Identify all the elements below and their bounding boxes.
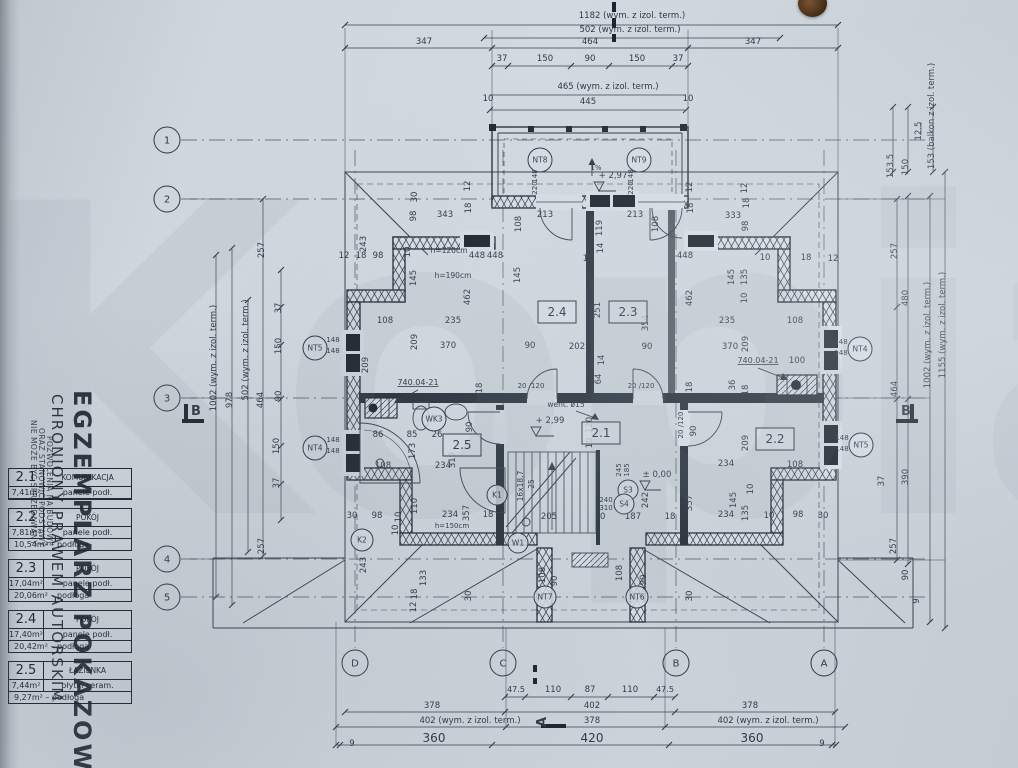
marker-label: NT4	[308, 444, 323, 453]
dim-label: 133	[419, 570, 429, 586]
axis-label: 4	[164, 555, 170, 566]
dim-label: 47.5	[507, 685, 525, 694]
marker-label: S3	[623, 486, 633, 495]
dim-label: 360	[423, 731, 446, 745]
flue-right	[791, 380, 801, 390]
dim-label: 234	[718, 510, 734, 520]
dim-label: 37	[272, 478, 282, 489]
room-number: 2.5	[452, 438, 471, 452]
toilet-tank	[413, 402, 429, 409]
dim-label: 14	[597, 355, 607, 366]
dim-label: 12	[685, 182, 695, 193]
room-number: 2.2	[765, 432, 784, 446]
dim-label: 18	[685, 382, 695, 393]
axis-label: D	[351, 659, 359, 670]
dim-label: 370	[440, 341, 456, 351]
dim-label: 98	[793, 510, 804, 520]
dim-label: 257	[889, 538, 899, 554]
dim-label: 18	[665, 512, 676, 522]
dim-label: 390	[901, 469, 911, 485]
section-a-bottom	[535, 665, 566, 726]
dim-label: 18	[410, 589, 420, 600]
dim-label: 12.5	[914, 122, 924, 141]
dim-label: 343	[437, 210, 453, 220]
dim-label: 347	[416, 37, 432, 47]
dim-label: 85	[407, 430, 418, 440]
dim-label: 360	[741, 731, 764, 745]
dim-label: 90	[901, 570, 911, 581]
floor-drain	[522, 518, 530, 526]
dim-label: 90	[465, 422, 475, 433]
dim-label: 465 (wym. z izol. term.)	[557, 82, 658, 92]
dim-label: 90	[585, 54, 596, 64]
dim-label: 1002 (wym. z izol. term.)	[209, 305, 219, 411]
dim-label: went. ø15	[547, 400, 585, 409]
dim-label: 64	[594, 374, 604, 385]
dim-label: 108	[651, 216, 661, 232]
dim-label: 148	[326, 436, 339, 444]
dim-label: 10	[483, 94, 494, 104]
dim-label: 173	[408, 443, 418, 459]
dim-label: 108	[375, 461, 391, 471]
dim-label: 148	[834, 338, 847, 346]
dim-label: 464	[890, 381, 900, 397]
dim-label: 90	[642, 342, 653, 352]
dim-label: 462	[463, 289, 473, 305]
dim-label: 9	[912, 598, 922, 603]
dim-label: 110	[622, 685, 638, 695]
dim-label: 37	[673, 54, 684, 64]
marker-label: W1	[512, 539, 524, 548]
dim-label: 10	[391, 525, 401, 536]
dim-label: 18	[742, 198, 752, 209]
dim-label: 108	[787, 460, 803, 470]
dim-label: 1002 (wym. z izol. term.)	[923, 282, 933, 388]
scanned-floor-plan-sheet: Kopia	[0, 0, 1018, 768]
dim-label: 90	[639, 575, 649, 586]
dim-label: 234	[435, 461, 451, 471]
dim-label: 148	[326, 347, 339, 355]
dim-label: 257	[890, 243, 900, 259]
dim-label: 235	[719, 316, 735, 326]
dim-label: 16x18,7	[516, 470, 525, 501]
dim-label: 9	[819, 739, 824, 749]
dim-label: 37	[274, 303, 284, 314]
axis-label: 2	[164, 195, 170, 206]
dim-label: 740.04-21	[397, 378, 438, 387]
dim-label: 30	[347, 511, 358, 521]
dim-label: 251	[593, 302, 603, 318]
dim-label: 135	[741, 505, 751, 521]
dim-label: 234	[718, 459, 734, 469]
axis-label: 5	[164, 593, 170, 604]
dim-label: 153.5	[886, 154, 896, 178]
dim-label: 10	[583, 254, 594, 264]
dim-label: 402 (wym. z izol. term.)	[419, 716, 520, 726]
dim-label: 10	[740, 293, 750, 304]
dim-label: 108	[538, 567, 548, 583]
dim-label: 90	[525, 341, 536, 351]
dim-label: 18	[356, 251, 367, 261]
level-flag-297	[594, 182, 616, 191]
dim-label: 378	[742, 701, 758, 711]
dim-label: 402	[584, 701, 600, 711]
dim-label: 30	[464, 591, 474, 602]
dim-label: 502 (wym. z izol. term.)	[241, 299, 251, 400]
dim-label: 978	[225, 392, 235, 408]
dim-label: 310	[599, 504, 612, 512]
dim-label: 36	[728, 380, 738, 391]
dim-label: 213	[627, 210, 643, 220]
dim-label: 90	[550, 576, 560, 587]
dim-label: 480	[901, 290, 911, 306]
dim-label: h=120cm	[431, 246, 468, 255]
dim-label: 98	[372, 511, 383, 521]
section-letter-B: B	[901, 404, 911, 419]
dim-label: 30	[818, 511, 829, 521]
dim-label: 37	[877, 476, 887, 487]
dimension-labels: 1182 (wym. z izol. term.)502 (wym. z izo…	[209, 11, 948, 749]
axis-label: A	[821, 659, 828, 670]
dim-label: 10	[746, 484, 756, 495]
dim-label: 10	[595, 512, 606, 522]
dim-label: 18	[464, 203, 474, 214]
marker-label: NT7	[538, 593, 553, 602]
dim-label: 150	[901, 159, 911, 175]
marker-label: NT9	[632, 156, 647, 165]
dim-label: 209	[741, 336, 751, 352]
flue-left	[369, 404, 378, 413]
dim-label: 243	[359, 557, 369, 573]
dim-label: 37	[497, 54, 508, 64]
section-letter-A: A	[535, 717, 550, 727]
dim-label: 12	[740, 183, 750, 194]
stamp-note-3: POZWOLENIA NA BUDOWĘ	[45, 436, 54, 547]
dim-label: 18	[475, 383, 485, 394]
dim-label: 502 (wym. z izol. term.)	[579, 25, 680, 35]
dim-label: 448	[487, 251, 503, 261]
dim-label: 12	[339, 251, 350, 261]
level-flag-299	[531, 427, 554, 436]
dim-label: 148	[326, 447, 339, 455]
dim-label: 464	[256, 392, 266, 408]
dim-label: 333	[725, 211, 741, 221]
marker-label: S4	[619, 500, 629, 509]
dim-label: 257	[257, 538, 267, 554]
dim-label: 90	[274, 391, 284, 402]
dim-label: 10	[760, 253, 771, 263]
marker-label: NT8	[533, 156, 548, 165]
dim-label: 213	[537, 210, 553, 220]
dim-label: 370	[722, 342, 738, 352]
dim-label: 119	[595, 220, 605, 236]
axis-label: 3	[164, 394, 170, 405]
dim-label: 150	[272, 438, 282, 454]
stamp-title: EGZEMPLARZ POKAZOWY	[68, 390, 96, 768]
paper-edge-shadow	[0, 0, 20, 768]
dim-label: 205	[541, 512, 557, 522]
axis-label: 1	[164, 136, 170, 147]
dim-label: ± 0,00	[643, 470, 672, 480]
room-number: 2.4	[547, 305, 566, 319]
dim-label: 150	[537, 54, 553, 64]
washbasin	[445, 404, 467, 420]
dim-label: 145	[729, 492, 739, 508]
dim-label: 10	[764, 511, 775, 521]
floor-plan-drawing: 1182 (wym. z izol. term.)502 (wym. z izo…	[0, 0, 1018, 768]
dim-label: 357	[685, 495, 695, 511]
dim-label: 357	[462, 505, 472, 521]
dim-label: 235	[445, 316, 461, 326]
dim-label: 12	[463, 181, 473, 192]
dim-label: 148	[834, 349, 847, 357]
dim-label: 220	[627, 181, 635, 194]
dim-label: 12	[828, 254, 839, 264]
marker-label: K1	[492, 491, 502, 500]
dim-label: 257	[257, 242, 267, 258]
marker-label: NT4	[853, 345, 868, 354]
section-letter-B: B	[191, 404, 201, 419]
dim-label: 30	[410, 192, 420, 203]
dim-label: 98	[409, 211, 419, 222]
marker-label: NT5	[308, 344, 323, 353]
dim-label: 420	[581, 731, 604, 745]
balcony-posts	[489, 124, 687, 132]
marker-label: WK3	[425, 415, 442, 424]
dim-label: 10	[394, 512, 404, 523]
dim-label: 108	[514, 216, 524, 232]
dim-label: 209	[410, 334, 420, 350]
dim-label: h=150cm	[435, 522, 470, 530]
dim-label: 145	[409, 270, 419, 286]
dim-label: 18	[483, 510, 494, 520]
dim-label: 20 /120	[677, 412, 685, 439]
dim-label: 202	[569, 342, 585, 352]
axis-label: C	[500, 659, 507, 670]
dim-label: 135	[740, 269, 750, 285]
dim-label: 347	[745, 37, 761, 47]
level-flag-000	[640, 481, 661, 490]
dim-label: 10	[683, 94, 694, 104]
dim-label: h=190cm	[435, 271, 472, 280]
dim-label: 108	[377, 316, 393, 326]
dim-label: 20 /120	[518, 382, 545, 390]
dim-label: 145	[727, 269, 737, 285]
dim-label: 18	[686, 203, 696, 214]
dim-label: 448	[469, 251, 485, 261]
dim-label: 445	[580, 97, 596, 107]
marker-label: NT6	[630, 593, 645, 602]
dim-label: 150	[629, 54, 645, 64]
dim-label: + 2,97	[599, 171, 628, 181]
dim-label: 402 (wym. z izol. term.)	[717, 716, 818, 726]
dim-label: 234	[442, 510, 458, 520]
dim-label: 378	[424, 701, 440, 711]
dim-label: 14	[596, 243, 606, 254]
dim-label: 150	[274, 338, 284, 354]
dim-label: 148	[835, 445, 848, 453]
dim-label: 740.04-21	[737, 356, 778, 365]
dim-label: 1%	[590, 164, 601, 172]
dim-label: 220	[531, 181, 539, 194]
dim-label: 12	[409, 602, 419, 613]
dim-label: 87	[585, 685, 596, 695]
dim-label: 98	[741, 221, 751, 232]
dim-label: 18	[801, 253, 812, 263]
dim-label: 378	[584, 716, 600, 726]
dim-label: 185	[623, 463, 631, 476]
dim-label: 30	[685, 591, 695, 602]
dim-label: 25	[527, 479, 536, 489]
dim-label: 242	[641, 492, 651, 508]
dim-label: 448	[677, 251, 693, 261]
dim-label: 148	[835, 434, 848, 442]
dim-label: 47.5	[656, 685, 674, 694]
dim-label: 1182 (wym. z izol. term.)	[579, 11, 685, 21]
dim-label: 153 (balkon z izol. term.)	[927, 63, 937, 169]
dim-label: 90	[689, 426, 699, 437]
dim-label: 245	[615, 463, 623, 476]
dim-label: 110	[545, 685, 561, 695]
dim-label: 243	[359, 236, 369, 252]
dim-label: 10	[403, 247, 413, 258]
dim-label: 240	[599, 496, 612, 504]
dim-label: 110	[410, 498, 420, 514]
dim-label: 1155 (wym. z izol. term.)	[938, 272, 948, 378]
dim-label: 86	[373, 430, 384, 440]
dim-label: 9	[349, 739, 354, 749]
dim-label: 100	[789, 356, 805, 366]
room-number: 2.1	[591, 426, 610, 440]
dim-label: 462	[685, 290, 695, 306]
dim-label: 209	[741, 435, 751, 451]
dim-label: 148	[326, 336, 339, 344]
dim-label: 20 /120	[628, 382, 655, 390]
marker-label: K2	[357, 536, 367, 545]
room-number: 2.3	[618, 305, 637, 319]
dim-label: 18	[741, 385, 751, 396]
dim-label: 26	[432, 430, 443, 440]
marker-label: NT5	[854, 441, 869, 450]
dim-label: 108	[787, 316, 803, 326]
dim-label: 145	[513, 267, 523, 283]
dim-label: 464	[582, 37, 598, 47]
dim-label: 108	[615, 565, 625, 581]
dim-label: 209	[361, 357, 371, 373]
dim-label: + 2,99	[536, 416, 565, 426]
axis-label: B	[673, 659, 680, 670]
dim-label: 98	[373, 251, 384, 261]
